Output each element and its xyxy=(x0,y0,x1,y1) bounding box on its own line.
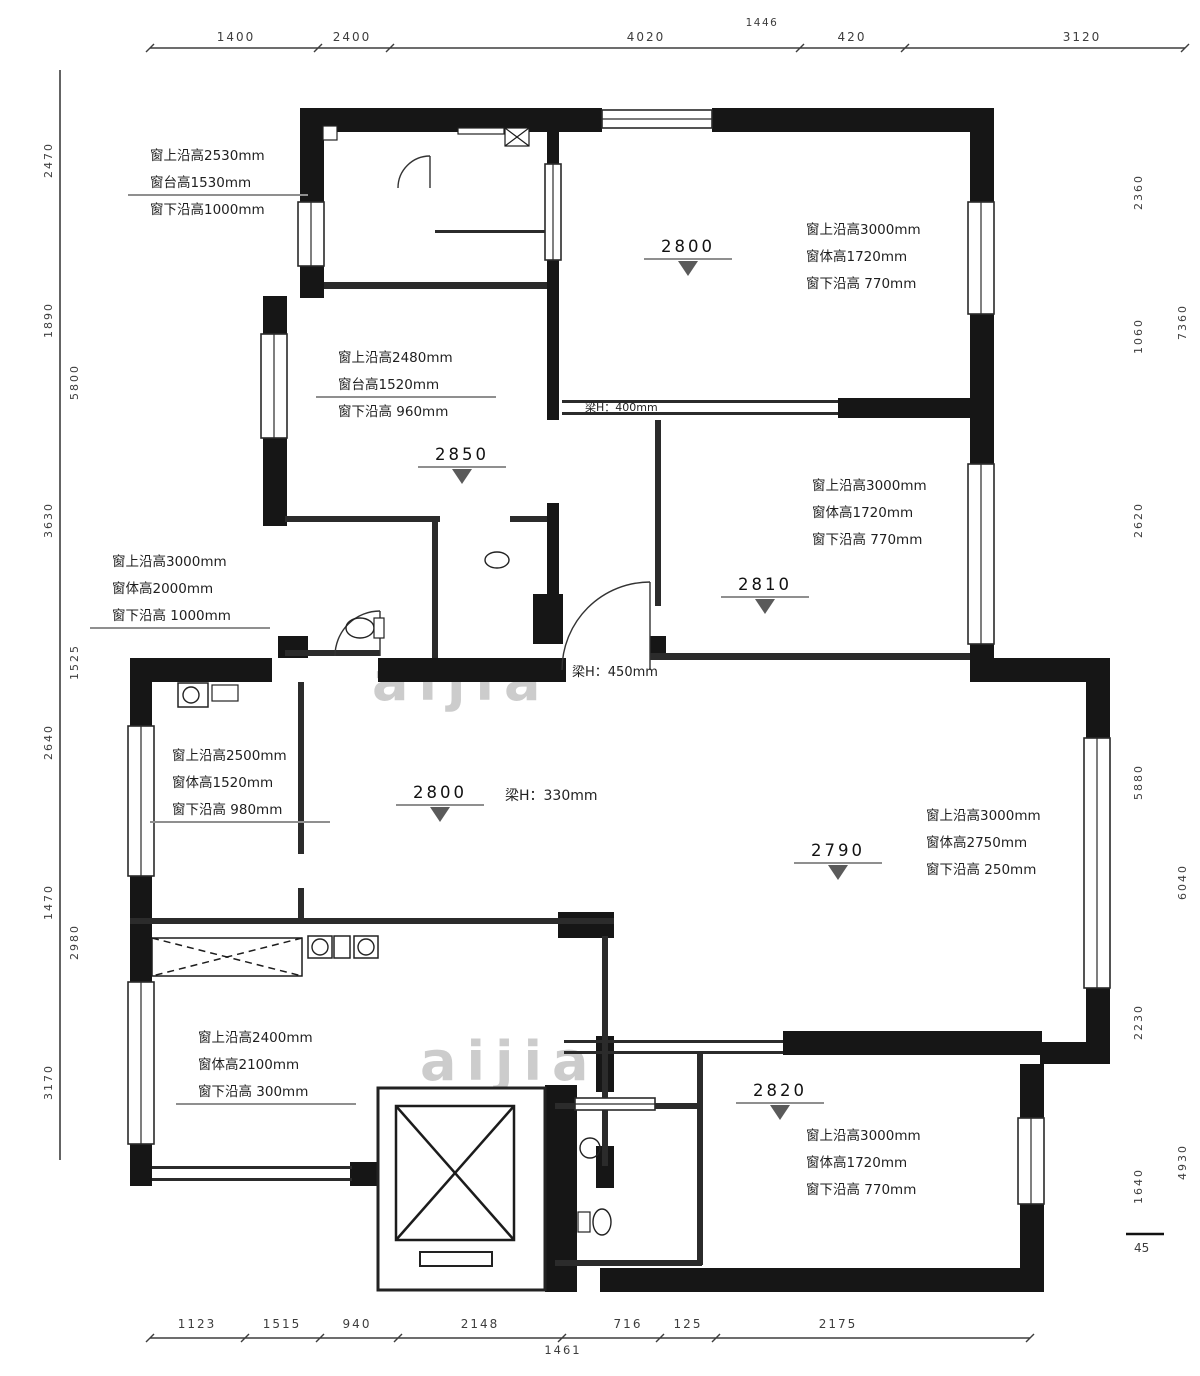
wall xyxy=(130,936,152,984)
window-annotation-line: 窗下沿高1000mm xyxy=(150,201,265,218)
dim-label-vertical: 7360 xyxy=(1176,304,1189,340)
wall xyxy=(1086,986,1110,1044)
window-annotation-line: 窗台高1520mm xyxy=(338,376,439,393)
level-triangle-icon xyxy=(430,807,450,822)
level-value: 2820 xyxy=(753,1081,807,1100)
dim-label: 4020 xyxy=(627,30,666,44)
dim-label-vertical: 1890 xyxy=(42,302,55,338)
wall xyxy=(970,416,994,464)
beam-label: 梁H：400mm xyxy=(585,400,658,414)
level-value: 2850 xyxy=(435,445,489,464)
wall xyxy=(300,108,324,204)
dim-label: 125 xyxy=(674,1317,703,1331)
dim-label: 2148 xyxy=(461,1317,500,1331)
window-annotation-line: 窗上沿高3000mm xyxy=(112,553,227,570)
wall xyxy=(130,658,272,682)
dim-label-vertical: 2980 xyxy=(68,924,81,960)
dim-label: 2400 xyxy=(333,30,372,44)
partition-wall xyxy=(555,1260,702,1266)
window-annotation-line: 窗下沿高 300mm xyxy=(198,1083,308,1100)
window-annotation-line: 窗下沿高 1000mm xyxy=(112,607,231,624)
partition-wall xyxy=(298,888,304,922)
beam-label: 梁H：330mm xyxy=(505,788,598,804)
wall xyxy=(300,264,324,298)
wall xyxy=(378,658,566,682)
window-annotation-line: 窗下沿高 250mm xyxy=(926,861,1036,878)
window-annotation-line: 窗体高2100mm xyxy=(198,1056,299,1073)
level-value: 2800 xyxy=(661,237,715,256)
wall xyxy=(838,398,994,418)
wall xyxy=(533,594,563,644)
wall xyxy=(970,658,1110,682)
toilet xyxy=(346,618,374,638)
window-annotation-line: 窗上沿高2400mm xyxy=(198,1029,313,1046)
wall xyxy=(970,132,994,204)
partition-wall xyxy=(510,516,547,522)
dim-label-vertical: 2230 xyxy=(1132,1004,1145,1040)
dim-label-vertical: 5880 xyxy=(1132,764,1145,800)
wall xyxy=(547,258,559,420)
wall xyxy=(130,682,152,728)
partition-wall xyxy=(130,918,614,924)
window-annotation-line: 窗下沿高 980mm xyxy=(172,801,282,818)
wall xyxy=(783,1031,1042,1055)
dim-label-vertical: 4930 xyxy=(1176,1144,1189,1180)
window-annotation-line: 窗台高1530mm xyxy=(150,174,251,191)
partition-wall xyxy=(285,516,440,522)
wall xyxy=(1020,1064,1044,1118)
window-annotation-line: 窗体高1520mm xyxy=(172,774,273,791)
dim-label: 1123 xyxy=(178,1317,217,1331)
dim-label: 1515 xyxy=(263,1317,302,1331)
dim-label-vertical: 2470 xyxy=(42,142,55,178)
wall xyxy=(562,108,602,132)
dim-label-vertical: 2360 xyxy=(1132,174,1145,210)
entry-door-arc xyxy=(562,582,650,670)
dim-note: 1446 xyxy=(746,17,779,29)
window-annotation-line: 窗上沿高2530mm xyxy=(150,147,265,164)
window-annotation-line: 窗体高2750mm xyxy=(926,834,1027,851)
level-value: 2810 xyxy=(738,575,792,594)
level-value: 2790 xyxy=(811,841,865,860)
dim-label: 420 xyxy=(838,30,867,44)
wall xyxy=(130,1142,152,1186)
window-annotation-line: 窗下沿高 770mm xyxy=(806,1181,916,1198)
shelf xyxy=(458,128,504,134)
partition-wall xyxy=(655,420,661,606)
wall xyxy=(1040,1042,1110,1064)
level-triangle-icon xyxy=(770,1105,790,1120)
window-annotation-line: 窗上沿高2480mm xyxy=(338,349,453,366)
right-mark-label: 45 xyxy=(1134,1241,1149,1255)
level-triangle-icon xyxy=(828,865,848,880)
toilet-tank xyxy=(374,618,384,638)
beam-label: 梁H：450mm xyxy=(572,665,658,680)
level-triangle-icon xyxy=(678,261,698,276)
partition-wall xyxy=(432,522,438,658)
dim-label-vertical: 2640 xyxy=(42,724,55,760)
dim-label-vertical: 1640 xyxy=(1132,1168,1145,1204)
window-annotation-line: 窗体高1720mm xyxy=(812,504,913,521)
partition-wall xyxy=(152,1178,352,1181)
dim-label-vertical: 3630 xyxy=(42,502,55,538)
basin xyxy=(485,552,509,568)
level-value: 2800 xyxy=(413,783,467,802)
window-annotation-line: 窗体高1720mm xyxy=(806,248,907,265)
dim-label-vertical: 6040 xyxy=(1176,864,1189,900)
dim-label: 3120 xyxy=(1063,30,1102,44)
dim-label-vertical: 5800 xyxy=(68,364,81,400)
window-annotation-line: 窗体高1720mm xyxy=(806,1154,907,1171)
partition-wall xyxy=(324,282,547,289)
wall xyxy=(547,130,559,168)
dim-label-vertical: 1470 xyxy=(42,884,55,920)
partition-wall xyxy=(298,682,304,854)
wall xyxy=(547,503,559,596)
level-triangle-icon xyxy=(452,469,472,484)
window-annotation-line: 窗下沿高 960mm xyxy=(338,403,448,420)
window-annotation-line: 窗下沿高 770mm xyxy=(812,531,922,548)
wall xyxy=(130,874,152,936)
watermark: aijia xyxy=(420,1030,598,1093)
dim-label: 1400 xyxy=(217,30,256,44)
toilet-2 xyxy=(593,1209,611,1235)
dim-label-vertical: 1060 xyxy=(1132,318,1145,354)
dim-label: 716 xyxy=(614,1317,643,1331)
dim-label-vertical: 2620 xyxy=(1132,502,1145,538)
window-annotation-line: 窗上沿高3000mm xyxy=(806,1127,921,1144)
closet xyxy=(323,126,337,140)
window-annotation-line: 窗上沿高2500mm xyxy=(172,747,287,764)
wall xyxy=(600,1268,1042,1292)
partition-wall xyxy=(564,1051,783,1054)
partition-wall xyxy=(697,1053,703,1105)
wall xyxy=(1086,682,1110,738)
wall xyxy=(558,912,614,938)
partition-wall xyxy=(653,1103,700,1109)
partition-wall xyxy=(697,1105,703,1265)
window-annotation-line: 窗体高2000mm xyxy=(112,580,213,597)
dim-label: 940 xyxy=(343,1317,372,1331)
gas-meter xyxy=(334,936,350,958)
toilet-tank-2 xyxy=(578,1212,590,1232)
window-annotation-line: 窗上沿高3000mm xyxy=(812,477,927,494)
partition-wall xyxy=(152,1166,352,1169)
window-annotation-line: 窗上沿高3000mm xyxy=(806,221,921,238)
dim-label-vertical: 1525 xyxy=(68,644,81,680)
cabinet xyxy=(212,685,238,701)
elevator-door xyxy=(420,1252,492,1266)
dim-label: 2175 xyxy=(819,1317,858,1331)
level-triangle-icon xyxy=(755,599,775,614)
partition-wall xyxy=(650,653,970,660)
wall xyxy=(263,296,287,336)
wall xyxy=(712,108,994,132)
partition-wall xyxy=(285,650,380,656)
partition-wall xyxy=(555,1103,577,1109)
wall xyxy=(263,436,287,526)
floor-plan-drawing: aijiaaijia窗上沿高2530mm窗台高1530mm窗下沿高1000mm窗… xyxy=(0,0,1200,1376)
dim-total: 1461 xyxy=(544,1343,581,1357)
door-arc xyxy=(398,156,430,188)
window-annotation-line: 窗下沿高 770mm xyxy=(806,275,916,292)
partition-wall xyxy=(435,230,547,233)
partition-wall xyxy=(564,1040,783,1043)
window-annotation-line: 窗上沿高3000mm xyxy=(926,807,1041,824)
floor-plan-page: aijia aijiaaijia窗上沿高2530mm窗台高1530mm窗下沿高1… xyxy=(0,0,1200,1376)
dim-label-vertical: 3170 xyxy=(42,1064,55,1100)
